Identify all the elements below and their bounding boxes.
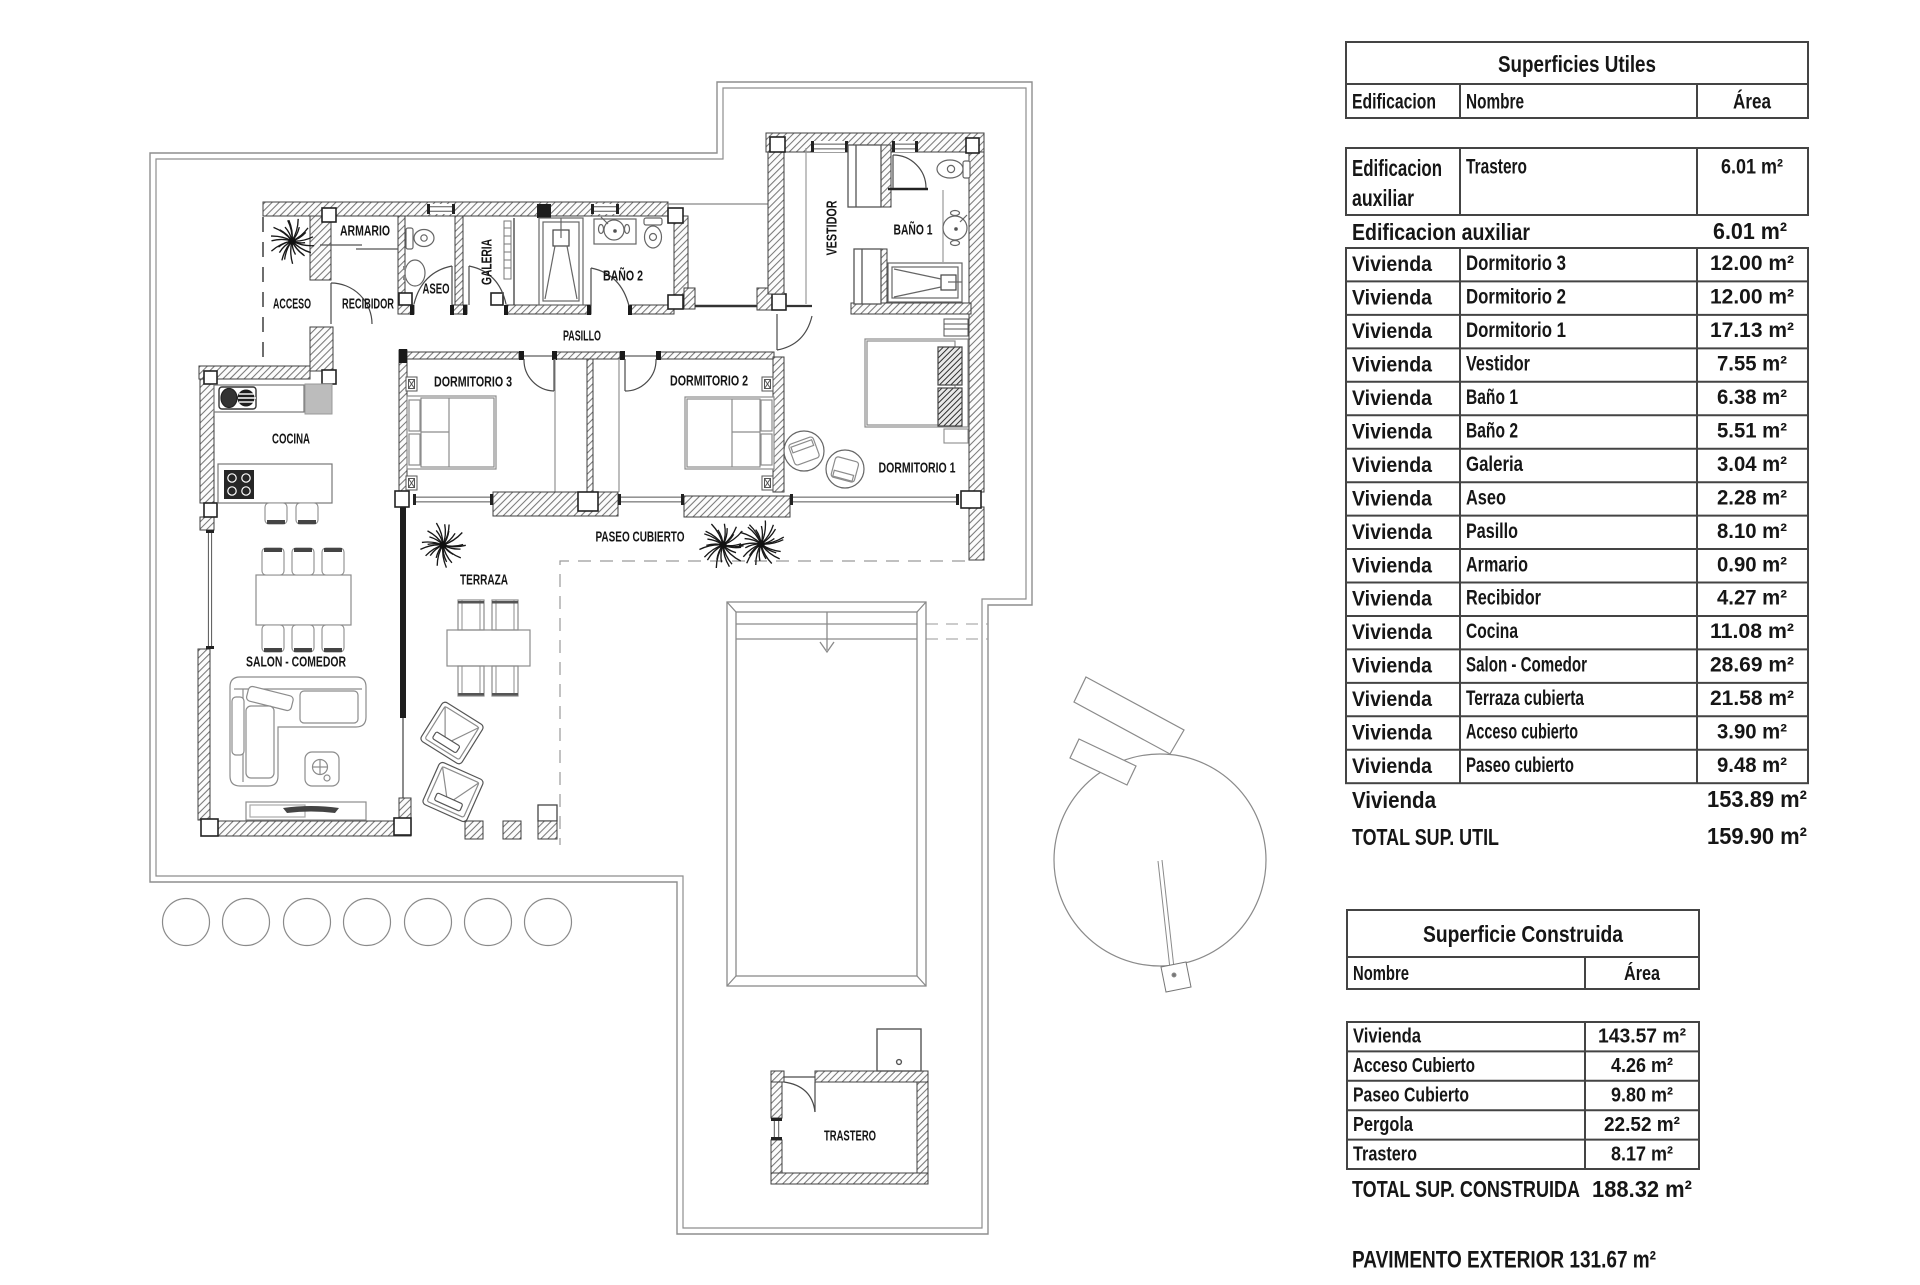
svg-text:21.58 m²: 21.58 m² bbox=[1710, 687, 1794, 710]
svg-text:auxiliar: auxiliar bbox=[1352, 185, 1414, 211]
svg-text:Nombre: Nombre bbox=[1353, 963, 1409, 985]
svg-text:Acceso cubierto: Acceso cubierto bbox=[1466, 721, 1578, 744]
svg-text:4.26 m²: 4.26 m² bbox=[1611, 1055, 1673, 1077]
svg-text:8.17 m²: 8.17 m² bbox=[1611, 1143, 1673, 1165]
svg-text:11.08 m²: 11.08 m² bbox=[1710, 620, 1794, 643]
svg-text:TRASTERO: TRASTERO bbox=[824, 1128, 876, 1145]
svg-text:Armario: Armario bbox=[1466, 553, 1528, 576]
svg-text:Vestidor: Vestidor bbox=[1466, 353, 1530, 376]
svg-text:Vivienda: Vivienda bbox=[1352, 688, 1432, 711]
svg-text:Vivienda: Vivienda bbox=[1352, 253, 1432, 276]
svg-text:188.32 m²: 188.32 m² bbox=[1592, 1176, 1692, 1202]
svg-text:5.51 m²: 5.51 m² bbox=[1717, 419, 1787, 442]
svg-text:Vivienda: Vivienda bbox=[1352, 287, 1432, 310]
svg-text:22.52 m²: 22.52 m² bbox=[1604, 1114, 1680, 1136]
svg-text:TERRAZA: TERRAZA bbox=[460, 572, 508, 589]
svg-text:Edificacion: Edificacion bbox=[1352, 155, 1442, 181]
svg-text:2.28 m²: 2.28 m² bbox=[1717, 486, 1787, 509]
svg-text:Vivienda: Vivienda bbox=[1352, 387, 1432, 410]
svg-text:6.01 m²: 6.01 m² bbox=[1713, 218, 1787, 244]
svg-text:Vivienda: Vivienda bbox=[1352, 420, 1432, 443]
svg-text:Vivienda: Vivienda bbox=[1352, 755, 1432, 778]
svg-text:Pasillo: Pasillo bbox=[1466, 520, 1518, 543]
svg-text:Cocina: Cocina bbox=[1466, 620, 1518, 643]
svg-text:Vivienda: Vivienda bbox=[1352, 722, 1432, 745]
svg-text:12.00 m²: 12.00 m² bbox=[1710, 252, 1794, 275]
svg-text:Acceso Cubierto: Acceso Cubierto bbox=[1353, 1055, 1475, 1077]
svg-text:RECIBIDOR: RECIBIDOR bbox=[342, 296, 394, 313]
svg-text:6.38 m²: 6.38 m² bbox=[1717, 386, 1787, 409]
svg-text:159.90 m²: 159.90 m² bbox=[1707, 823, 1807, 849]
svg-text:Vivienda: Vivienda bbox=[1352, 588, 1432, 611]
svg-text:8.10 m²: 8.10 m² bbox=[1717, 520, 1787, 543]
svg-text:Área: Área bbox=[1624, 962, 1661, 985]
svg-text:ASEO: ASEO bbox=[423, 281, 450, 298]
svg-text:6.01 m²: 6.01 m² bbox=[1721, 156, 1783, 179]
svg-text:TOTAL SUP. UTIL: TOTAL SUP. UTIL bbox=[1352, 824, 1499, 850]
svg-text:Edificacion auxiliar: Edificacion auxiliar bbox=[1352, 219, 1530, 245]
svg-text:12.00 m²: 12.00 m² bbox=[1710, 286, 1794, 309]
svg-text:143.57 m²: 143.57 m² bbox=[1598, 1026, 1686, 1048]
svg-text:ACCESO: ACCESO bbox=[273, 296, 311, 313]
svg-text:Dormitorio 1: Dormitorio 1 bbox=[1466, 319, 1566, 342]
svg-text:9.80 m²: 9.80 m² bbox=[1611, 1085, 1673, 1107]
svg-text:TOTAL SUP. CONSTRUIDA: TOTAL SUP. CONSTRUIDA bbox=[1352, 1176, 1580, 1202]
svg-text:0.90 m²: 0.90 m² bbox=[1717, 553, 1787, 576]
svg-text:PASILLO: PASILLO bbox=[563, 328, 601, 345]
svg-text:PAVIMENTO EXTERIOR 131.67 m²: PAVIMENTO EXTERIOR 131.67 m² bbox=[1352, 1247, 1656, 1274]
svg-text:Trastero: Trastero bbox=[1466, 156, 1527, 179]
svg-text:VESTIDOR: VESTIDOR bbox=[824, 200, 841, 255]
svg-text:28.69 m²: 28.69 m² bbox=[1710, 654, 1794, 677]
svg-text:DORMITORIO 2: DORMITORIO 2 bbox=[670, 373, 748, 390]
svg-text:153.89 m²: 153.89 m² bbox=[1707, 786, 1807, 812]
svg-text:Paseo cubierto: Paseo cubierto bbox=[1466, 754, 1574, 777]
svg-text:Baño 1: Baño 1 bbox=[1466, 386, 1518, 409]
svg-text:Vivienda: Vivienda bbox=[1352, 454, 1432, 477]
svg-text:Baño 2: Baño 2 bbox=[1466, 419, 1518, 442]
svg-text:GALERIA: GALERIA bbox=[479, 239, 496, 285]
svg-text:PASEO CUBIERTO: PASEO CUBIERTO bbox=[596, 529, 685, 546]
svg-text:Vivienda: Vivienda bbox=[1352, 521, 1432, 544]
svg-text:Vivienda: Vivienda bbox=[1352, 621, 1432, 644]
svg-text:Recibidor: Recibidor bbox=[1466, 587, 1541, 610]
svg-text:9.48 m²: 9.48 m² bbox=[1717, 754, 1787, 777]
svg-text:SALON - COMEDOR: SALON - COMEDOR bbox=[246, 654, 346, 671]
svg-text:Pergola: Pergola bbox=[1353, 1114, 1414, 1136]
svg-text:Nombre: Nombre bbox=[1466, 91, 1524, 114]
svg-text:Vivienda: Vivienda bbox=[1353, 1026, 1422, 1048]
svg-text:DORMITORIO 1: DORMITORIO 1 bbox=[879, 460, 956, 477]
svg-text:Edificacion: Edificacion bbox=[1352, 91, 1436, 114]
svg-text:Terraza cubierta: Terraza cubierta bbox=[1466, 687, 1584, 710]
svg-text:7.55 m²: 7.55 m² bbox=[1717, 353, 1787, 376]
svg-text:Galeria: Galeria bbox=[1466, 453, 1523, 476]
svg-text:Paseo Cubierto: Paseo Cubierto bbox=[1353, 1085, 1469, 1107]
svg-text:Vivienda: Vivienda bbox=[1352, 554, 1432, 577]
svg-text:Vivienda: Vivienda bbox=[1352, 354, 1432, 377]
svg-text:Salon - Comedor: Salon - Comedor bbox=[1466, 654, 1587, 677]
svg-text:3.90 m²: 3.90 m² bbox=[1717, 721, 1787, 744]
svg-text:BAÑO 2: BAÑO 2 bbox=[603, 267, 643, 285]
svg-text:DORMITORIO 3: DORMITORIO 3 bbox=[434, 374, 512, 391]
svg-text:Vivienda: Vivienda bbox=[1352, 320, 1432, 343]
svg-text:Vivienda: Vivienda bbox=[1352, 487, 1432, 510]
svg-text:Vivienda: Vivienda bbox=[1352, 655, 1432, 678]
svg-text:ARMARIO: ARMARIO bbox=[340, 223, 390, 240]
svg-text:Área: Área bbox=[1733, 91, 1771, 114]
svg-text:Aseo: Aseo bbox=[1466, 486, 1506, 509]
svg-text:COCINA: COCINA bbox=[272, 431, 310, 448]
svg-text:BAÑO 1: BAÑO 1 bbox=[894, 221, 933, 239]
svg-text:17.13 m²: 17.13 m² bbox=[1710, 319, 1794, 342]
svg-text:Superficies Utiles: Superficies Utiles bbox=[1498, 51, 1656, 77]
svg-text:Trastero: Trastero bbox=[1353, 1143, 1417, 1165]
svg-text:Dormitorio 2: Dormitorio 2 bbox=[1466, 286, 1566, 309]
svg-text:Superficie Construida: Superficie Construida bbox=[1423, 921, 1623, 947]
svg-text:3.04 m²: 3.04 m² bbox=[1717, 453, 1787, 476]
svg-text:Dormitorio 3: Dormitorio 3 bbox=[1466, 252, 1566, 275]
svg-text:4.27 m²: 4.27 m² bbox=[1717, 587, 1787, 610]
svg-text:Vivienda: Vivienda bbox=[1352, 787, 1436, 813]
